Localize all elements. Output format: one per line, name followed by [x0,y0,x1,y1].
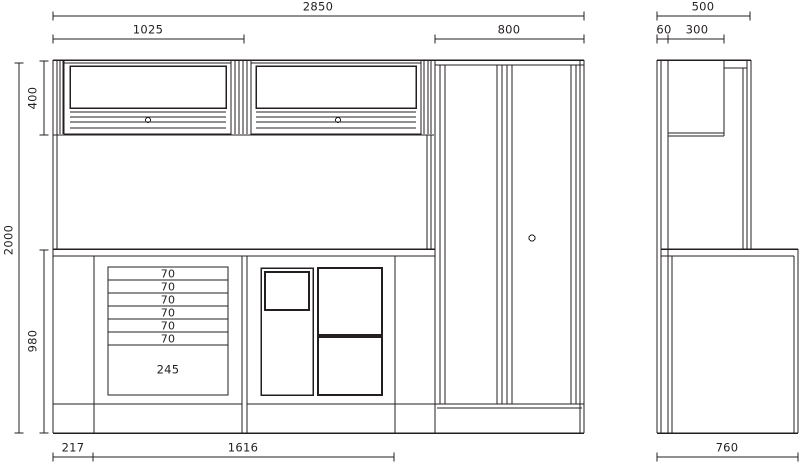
dim-overall-height [15,63,24,433]
dim-label-wall-panel-depth: 60 [656,24,671,36]
dim-wall-cabinet-height [40,61,49,135]
dim-bench-height [40,250,49,433]
dim-label-wall-cabinet-height: 400 [27,87,39,110]
drawer-height-label: 70 [161,295,175,306]
dim-label-bench-width: 1616 [228,442,258,454]
bench-module-divider [242,256,247,433]
flip-door-window [256,66,416,108]
wall-cabinet-right [251,60,421,134]
drawer-height-label: 70 [161,321,175,332]
wall-cabinet-left [64,60,231,134]
drawer-compartment-label: 245 [157,364,180,376]
worktop [53,249,435,256]
dim-label-wall-cabinet-depth: 300 [686,24,709,36]
side-view [657,60,798,433]
front-view [53,60,584,433]
door-inset-panel [265,272,309,310]
dim-bottom-widths [53,453,394,462]
drawing-linework [0,0,800,464]
wall-upright [657,60,668,433]
flip-door-window [70,66,226,108]
back-panel [53,135,434,249]
dim-label-left-offset: 217 [62,442,85,454]
tall-cabinet [435,60,584,433]
dim-label-left-cabinet-width: 1025 [133,24,163,36]
dim-label-bench-height: 980 [27,330,39,353]
front-post [724,60,751,249]
drawer-height-label: 70 [161,308,175,319]
side-panel-bottom [318,337,382,395]
knob-icon [529,235,535,241]
dim-label-overall-height: 2000 [3,225,15,255]
dim-label-tall-cabinet-width: 800 [498,24,521,36]
drawer-height-label: 70 [161,334,175,345]
drawer-height-label: 70 [161,269,175,280]
dim-label-side-bench-depth: 760 [716,442,739,454]
technical-drawing: 2850 1025 800 500 60 300 2000 400 980 21… [0,0,800,464]
wall-cabinet-side [668,60,724,136]
cabinet-door [261,268,313,395]
side-panel-top [318,268,382,335]
dimension-lines [15,12,799,462]
dim-label-overall-width: 2850 [303,1,333,13]
door-module [261,256,395,433]
bench-side [657,249,798,433]
wall-units-row [60,60,431,134]
dim-label-overall-depth: 500 [692,1,715,13]
drawer-height-label: 70 [161,282,175,293]
worktop-side [661,249,798,256]
